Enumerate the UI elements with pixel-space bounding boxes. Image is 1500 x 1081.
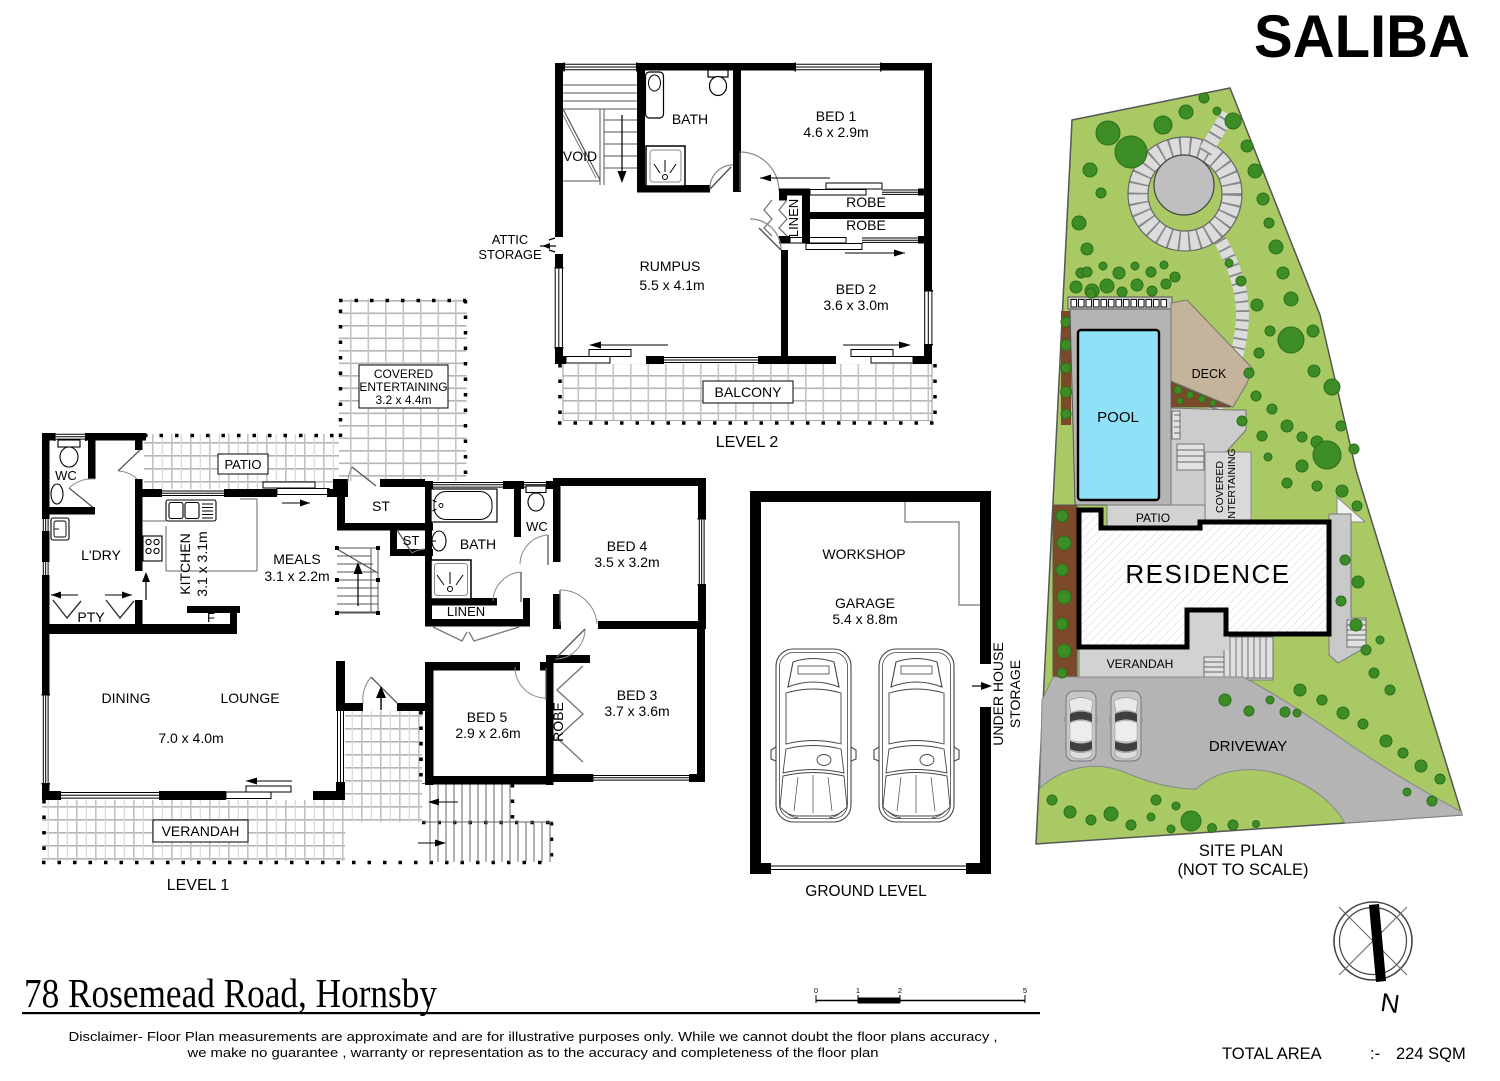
- svg-text:ROBE: ROBE: [846, 217, 886, 233]
- svg-text:PTY: PTY: [77, 609, 105, 625]
- svg-text:LINEN: LINEN: [786, 199, 801, 237]
- svg-text:3.6 x 3.0m: 3.6 x 3.0m: [823, 297, 888, 313]
- svg-text:KITCHEN: KITCHEN: [177, 533, 193, 594]
- svg-text:WORKSHOP: WORKSHOP: [822, 546, 905, 562]
- svg-text:POOL: POOL: [1097, 409, 1139, 426]
- svg-text:SITE PLAN: SITE PLAN: [1199, 842, 1283, 860]
- svg-text:STORAGE: STORAGE: [1007, 660, 1023, 728]
- svg-text:WC: WC: [526, 519, 548, 534]
- svg-text:PATIO: PATIO: [224, 457, 261, 472]
- svg-text:4.6 x 2.9m: 4.6 x 2.9m: [803, 124, 868, 140]
- svg-text:BED 5: BED 5: [467, 709, 508, 725]
- svg-text:LINEN: LINEN: [447, 604, 485, 619]
- svg-text:DRIVEWAY: DRIVEWAY: [1209, 738, 1287, 755]
- svg-text:ENTERTAINING: ENTERTAINING: [359, 380, 447, 394]
- svg-text:1: 1: [856, 986, 860, 995]
- svg-text:LEVEL 1: LEVEL 1: [167, 877, 230, 894]
- svg-text:5: 5: [1023, 986, 1027, 995]
- svg-text:(NOT TO SCALE): (NOT TO SCALE): [1177, 861, 1308, 879]
- svg-text:3.7 x 3.6m: 3.7 x 3.6m: [604, 703, 669, 719]
- svg-text:LEVEL 2: LEVEL 2: [716, 434, 779, 451]
- svg-text:ROBE: ROBE: [550, 702, 566, 742]
- svg-text:5.5 x 4.1m: 5.5 x 4.1m: [639, 277, 704, 293]
- svg-text:ENTERTAINING: ENTERTAINING: [1226, 448, 1238, 525]
- svg-text:MEALS: MEALS: [273, 551, 320, 567]
- svg-text:BED 4: BED 4: [607, 538, 648, 554]
- svg-text:ST: ST: [372, 498, 390, 514]
- svg-text:VERANDAH: VERANDAH: [162, 823, 240, 839]
- svg-text:3.1 x 2.2m: 3.1 x 2.2m: [264, 568, 329, 584]
- svg-text:ST: ST: [403, 533, 420, 548]
- svg-text:RUMPUS: RUMPUS: [640, 258, 701, 274]
- svg-text:LOUNGE: LOUNGE: [220, 690, 279, 706]
- svg-text:BATH: BATH: [460, 536, 496, 552]
- svg-text:COVERED: COVERED: [374, 367, 434, 381]
- svg-text:L'DRY: L'DRY: [81, 547, 121, 563]
- svg-text:BED 3: BED 3: [617, 687, 658, 703]
- svg-text:3.5 x 3.2m: 3.5 x 3.2m: [594, 554, 659, 570]
- svg-text:ROBE: ROBE: [846, 194, 886, 210]
- svg-text:3.2 x 4.4m: 3.2 x 4.4m: [375, 393, 431, 407]
- svg-text:SALIBA: SALIBA: [1254, 3, 1470, 70]
- svg-text:TOTAL AREA: TOTAL AREA: [1222, 1045, 1322, 1063]
- svg-text:we make no guarantee , warrant: we make no guarantee , warranty or repre…: [186, 1045, 878, 1060]
- svg-text:78 Rosemead Road, Hornsby: 78 Rosemead Road, Hornsby: [24, 970, 437, 1016]
- svg-text:7.0 x 4.0m: 7.0 x 4.0m: [158, 730, 223, 746]
- svg-text:3.1 x 3.1m: 3.1 x 3.1m: [194, 531, 210, 596]
- svg-text:UNDER HOUSE: UNDER HOUSE: [990, 642, 1006, 745]
- svg-text:DECK: DECK: [1192, 367, 1227, 381]
- svg-text:5.4 x 8.8m: 5.4 x 8.8m: [832, 611, 897, 627]
- svg-text:WC: WC: [55, 468, 77, 483]
- svg-text:2: 2: [898, 986, 902, 995]
- svg-text:GARAGE: GARAGE: [835, 595, 895, 611]
- svg-text:Disclaimer- Floor Plan measure: Disclaimer- Floor Plan measurements are …: [69, 1029, 998, 1044]
- svg-text:VERANDAH: VERANDAH: [1107, 657, 1174, 671]
- svg-text::-: :-: [1370, 1045, 1380, 1063]
- svg-text:GROUND LEVEL: GROUND LEVEL: [805, 883, 927, 900]
- svg-text:DINING: DINING: [102, 690, 151, 706]
- svg-text:COVERED: COVERED: [1214, 461, 1226, 513]
- svg-text:BED 1: BED 1: [816, 108, 857, 124]
- svg-text:BED 2: BED 2: [836, 281, 877, 297]
- svg-text:VOID: VOID: [563, 148, 597, 164]
- svg-text:2.9 x 2.6m: 2.9 x 2.6m: [455, 725, 520, 741]
- svg-text:BATH: BATH: [672, 111, 708, 127]
- svg-text:224 SQM: 224 SQM: [1396, 1045, 1466, 1063]
- svg-text:PATIO: PATIO: [1136, 511, 1170, 525]
- svg-text:0: 0: [814, 986, 818, 995]
- svg-text:F: F: [207, 610, 215, 625]
- svg-text:ATTIC: ATTIC: [492, 232, 529, 247]
- svg-text:RESIDENCE: RESIDENCE: [1125, 559, 1290, 589]
- svg-text:STORAGE: STORAGE: [478, 247, 542, 262]
- svg-text:BALCONY: BALCONY: [715, 384, 783, 400]
